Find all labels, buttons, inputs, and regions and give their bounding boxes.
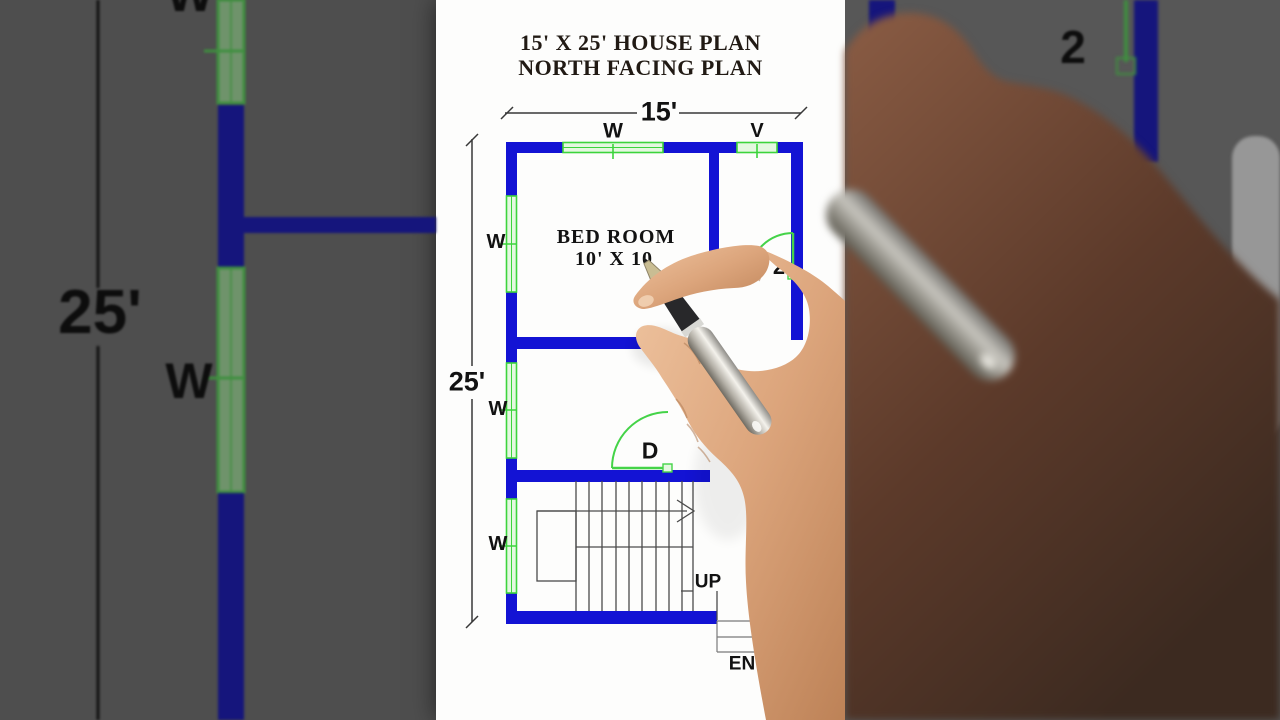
- hand: [636, 248, 845, 720]
- index-finger: [633, 245, 769, 309]
- video-frame: 15' X 25' HOUSE PLAN NORTH FACING PLAN 1…: [0, 0, 1280, 720]
- hand-pen-layer: [0, 0, 1280, 720]
- hand-palm: [636, 248, 845, 720]
- blurred-hand: [816, 13, 1280, 720]
